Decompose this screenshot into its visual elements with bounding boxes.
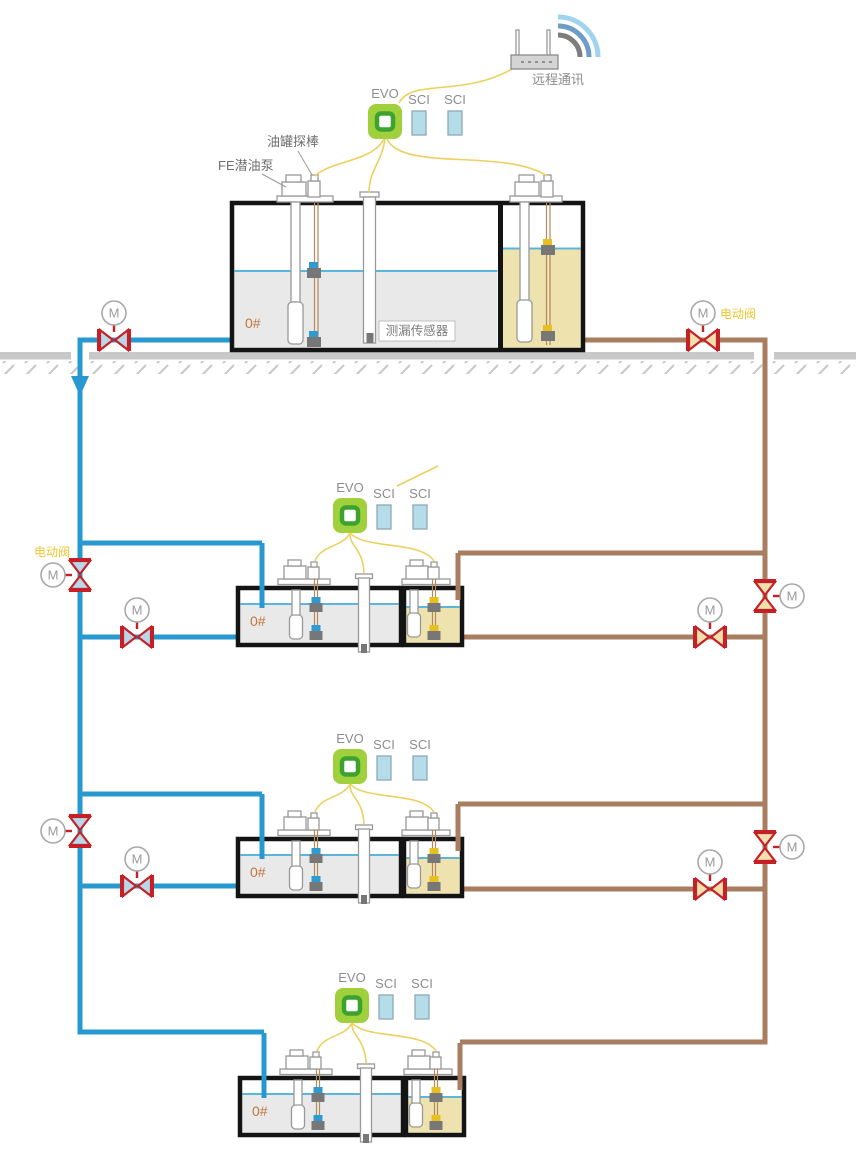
- submersible-pump: [288, 302, 303, 344]
- router: 远程通讯: [511, 17, 598, 87]
- motor-valve: [120, 598, 154, 648]
- level-float: [541, 245, 555, 255]
- ground-line: [0, 351, 856, 374]
- level-float: [541, 331, 555, 341]
- antenna-icon: [547, 30, 550, 56]
- level-float: [307, 268, 321, 278]
- fuel-station-diagram: M EVO SCI SCI: [0, 0, 856, 1154]
- motor-valve: [120, 847, 154, 897]
- remote-comm-label: 远程通讯: [532, 72, 584, 87]
- motor-valve: [97, 301, 131, 351]
- pipe-blue-main: [80, 340, 264, 1032]
- pipe-brown-main: [460, 340, 765, 1042]
- motor-valve: [41, 558, 91, 592]
- wire-stub: [397, 466, 438, 486]
- level-float: [307, 337, 321, 347]
- manhole-flange: [277, 196, 333, 202]
- electric-valve-label: 电动阀: [720, 307, 756, 321]
- pump-callout-label: FE潜油泵: [218, 158, 274, 173]
- motor-valve: [754, 579, 804, 613]
- tank-station-4: [240, 970, 464, 1143]
- motor-valve: [693, 598, 727, 648]
- probe-callout-label: 油罐探棒: [267, 134, 319, 149]
- motor-valve: [686, 301, 720, 351]
- tank-station-1: 0# 测漏传感器 FE潜油泵: [218, 68, 583, 350]
- monitor-set: [368, 86, 466, 139]
- tank-station-2: [238, 480, 462, 653]
- probe-head: [308, 181, 320, 197]
- pump-head: [282, 182, 306, 196]
- submersible-pump: [517, 300, 532, 342]
- tank-grade-label: 0#: [245, 315, 261, 331]
- leak-sensor-tube: [364, 197, 376, 343]
- pipe-network: [71, 340, 765, 1042]
- leak-sensor-label: 测漏传感器: [386, 323, 449, 338]
- antenna-icon: [516, 30, 519, 56]
- tank-station-3: [238, 731, 462, 904]
- electric-valve-label: 电动阀: [34, 545, 70, 559]
- flow-arrow-icon: [71, 376, 89, 396]
- probe-head: [541, 181, 553, 197]
- manhole-flange: [510, 196, 562, 202]
- motor-valve: [41, 814, 91, 848]
- motor-valve: [693, 850, 727, 900]
- motor-valve: [754, 830, 804, 864]
- pump-head: [515, 182, 539, 196]
